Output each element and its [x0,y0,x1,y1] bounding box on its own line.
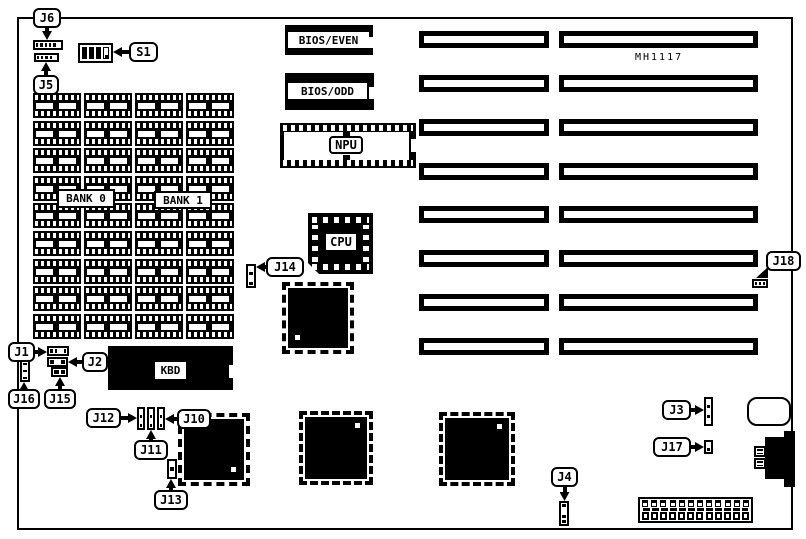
chip-detail [212,241,229,247]
chip-notch [229,365,236,378]
chip-detail [86,166,130,171]
chip-detail [110,296,127,302]
chip-detail [35,166,79,171]
chip-detail [212,103,229,109]
chip-detail [36,158,53,164]
memory-chip [33,231,81,256]
pin-cell [150,420,152,423]
pin-cell [757,461,763,463]
chip-detail [36,241,53,247]
power-cells-row [642,512,749,520]
chip-detail [86,277,130,282]
chip-detail [35,221,79,226]
pin-cell [759,282,761,285]
memory-chip [186,259,234,284]
chip-detail [35,233,79,238]
chip-detail [110,131,127,137]
chip-detail [161,158,178,164]
chip-detail [35,111,79,116]
chip-detail [35,95,79,100]
pin-cell [140,410,142,413]
pin-cell [23,367,27,369]
power-pin [660,500,666,507]
callout-j6: J6 [33,8,61,28]
pin-cell [59,349,62,353]
memory-chip [84,259,132,284]
chip-detail [137,277,181,282]
connector-din-plug-2 [754,458,766,469]
chip-detail [212,296,229,302]
power-cell [660,512,667,520]
bios-odd-chip: BIOS/ODD [285,73,374,110]
isa-slot-short [419,338,549,355]
chip-detail [137,304,181,309]
pin-cell [58,43,60,47]
chip-detail [35,261,79,266]
callout-j10: J10 [177,409,211,429]
memory-chip [33,259,81,284]
chip-detail [137,288,181,293]
chip-detail [87,324,104,330]
pin-cell [249,282,253,285]
chip-detail [110,241,127,247]
power-cell [642,512,649,520]
chip-detail [137,316,181,321]
pin-cell [49,43,51,47]
chip-detail [189,269,206,275]
memory-chip [186,231,234,256]
pin-cell [41,56,43,59]
socket-pads [312,225,318,262]
memory-chip [135,286,183,311]
chip-detail [188,166,232,171]
isa-slot-short [419,31,549,48]
chip-detail [189,241,206,247]
callout-j1: J1 [8,342,35,362]
chip-detail [86,150,130,155]
pin-cell [160,410,162,413]
callout-j17: J17 [653,437,691,457]
connector-j18 [752,279,768,288]
chip-detail [188,111,232,116]
chip-detail [59,158,76,164]
chip-detail [137,178,181,183]
bank0-label: BANK 0 [57,189,115,208]
pin-cell [150,410,152,413]
pin-cell [249,267,253,270]
chip-detail [59,213,76,219]
pin-cell [755,282,757,285]
chip-detail [161,296,178,302]
pin-cell [61,360,65,364]
connector-j5 [34,53,59,62]
chip-detail [188,332,232,337]
pin-cell [140,420,142,423]
memory-chip [135,148,183,173]
power-cell [742,512,749,520]
chip-detail [137,332,181,337]
chip-detail [188,178,232,183]
chip-detail [137,249,181,254]
memory-chip [135,121,183,146]
chip-detail [35,304,79,309]
npu-label: NPU [329,136,363,154]
socket-pins [283,160,413,166]
pin-cell [37,56,39,59]
chip-detail [138,103,155,109]
chip-detail [189,158,206,164]
connector-j1 [47,346,69,356]
power-cell [706,512,713,520]
chip-detail [137,150,181,155]
callout-j2: J2 [82,352,108,372]
chip-detail [189,103,206,109]
isa-slot-long [559,250,758,267]
socket-pins [283,125,413,131]
chip-detail [138,296,155,302]
pin-cell [54,56,56,59]
chip-detail [86,249,130,254]
power-cell [687,512,694,520]
chip-detail [110,269,127,275]
callout-j14: J14 [266,257,304,277]
chip-detail [188,233,232,238]
memory-chip [186,121,234,146]
dip-switch-position [89,47,94,59]
chip-detail [86,316,130,321]
chip-detail [86,139,130,144]
memory-chip [84,314,132,339]
chip-detail [212,131,229,137]
qfp-chip-3 [305,417,367,479]
pin-cell [150,424,152,427]
power-divider [643,508,748,511]
power-pin [715,500,721,507]
pin-cell [53,43,55,47]
chip-detail [86,111,130,116]
pin1-dot [295,335,300,340]
pin-cell [707,443,710,446]
chip-detail [189,296,206,302]
power-pin [706,500,712,507]
power-pin [651,500,657,507]
pin-cell [707,448,710,451]
memory-chip [186,148,234,173]
pin-cell [249,277,253,280]
pin-cell [707,415,710,418]
chip-detail [188,288,232,293]
socket-pads [312,217,369,223]
cpu-socket: CPU [308,213,373,274]
chip-detail [137,139,181,144]
connector-j2 [47,357,68,367]
pin-cell [23,374,27,376]
chip-detail [86,332,130,337]
isa-slot-short [419,206,549,223]
memory-chip [84,286,132,311]
socket-pads [363,225,369,262]
pin-cell [160,415,162,418]
memory-chip [33,314,81,339]
chip-detail [212,186,229,192]
chip-detail [137,221,181,226]
connector-j12-2 [147,407,155,430]
power-pin [679,500,685,507]
pin-cell [23,377,27,379]
dip-switch-position [82,47,87,59]
chip-detail [189,213,206,219]
power-pin [725,500,731,507]
memory-chip [186,314,234,339]
chip-detail [137,166,181,171]
chip-detail [137,95,181,100]
pin-cell [45,56,47,59]
pin-cell [50,360,54,364]
pin-cell [249,272,253,275]
bios-even-label: BIOS/EVEN [288,32,369,48]
callout-j4: J4 [551,467,578,487]
chip-detail [188,221,232,226]
chip-detail [35,288,79,293]
pin-cell [763,282,765,285]
memory-chip [186,286,234,311]
chip-detail [36,186,53,192]
power-cell [678,512,685,520]
pin-cell [562,509,566,512]
chip-detail [161,131,178,137]
memory-chip [84,148,132,173]
chip-detail [87,103,104,109]
memory-chip [84,93,132,118]
power-cell [651,512,658,520]
chip-detail [35,150,79,155]
chip-detail [36,324,53,330]
power-pin [688,500,694,507]
pin-cell [707,420,710,423]
isa-slot-short [419,75,549,92]
power-pin [670,500,676,507]
bios-odd-label: BIOS/ODD [288,83,367,99]
chip-notch [411,139,418,152]
isa-slot-short [419,163,549,180]
callout-j16: J16 [8,389,40,409]
chip-detail [161,241,178,247]
callout-j5: J5 [33,75,59,95]
connector-j13 [167,459,177,479]
chip-detail [110,213,127,219]
callout-j12: J12 [86,408,121,428]
chip-detail [161,213,178,219]
memory-chip [33,286,81,311]
pin-cell [757,465,763,467]
connector-din-plug-1 [754,446,766,457]
chip-detail [161,324,178,330]
pin-cell [170,473,174,476]
chip-detail [35,139,79,144]
chip-detail [188,261,232,266]
pin-cell [64,349,67,353]
chip-detail [86,261,130,266]
pin-cell [150,415,152,418]
bank1-label: BANK 1 [154,191,212,209]
memory-chip [84,231,132,256]
board-part-number: MH1117 [635,52,683,63]
chip-detail [110,103,127,109]
chip-detail [212,269,229,275]
power-cell [696,512,703,520]
isa-slot-long [559,206,758,223]
keyboard-din-connector-edge [784,431,795,487]
power-pin [697,500,703,507]
power-cell [669,512,676,520]
pin-cell [140,415,142,418]
connector-j12-3 [157,407,165,430]
socket-pads [312,264,369,270]
chip-detail [161,103,178,109]
chip-detail [188,123,232,128]
connector-j15 [51,367,68,377]
chip-detail [212,213,229,219]
pin-cell [170,467,174,470]
connector-j14 [246,264,256,288]
pin-cell [757,453,763,455]
chip-detail [59,103,76,109]
qfp-chip-1 [288,288,348,348]
chip-detail [36,296,53,302]
chip-detail [189,324,206,330]
chip-detail [87,269,104,275]
chip-detail [188,139,232,144]
chip-detail [86,304,130,309]
chip-detail [87,213,104,219]
chip-detail [138,158,155,164]
chip-detail [188,95,232,100]
pin-cell [40,43,42,47]
pin-cell [54,370,59,374]
chip-detail [188,316,232,321]
pin-cell [50,56,52,59]
chip-detail [110,324,127,330]
chip-detail [35,249,79,254]
chip-detail [35,277,79,282]
callout-j3: J3 [662,400,691,420]
isa-slot-long [559,294,758,311]
chip-detail [212,324,229,330]
chip-detail [35,123,79,128]
qfp-chip-4 [445,418,509,480]
chip-detail [86,233,130,238]
chip-detail [188,304,232,309]
pin1-dot [355,423,360,428]
memory-chip [135,93,183,118]
isa-slot-long [559,163,758,180]
isa-slot-short [419,250,549,267]
chip-detail [87,131,104,137]
pin-cell [562,520,566,523]
chip-detail [138,186,155,192]
isa-slot-long [559,338,758,355]
pin-cell [707,410,710,413]
connector-j6 [33,40,63,50]
chip-detail [138,213,155,219]
chip-notch [369,87,378,99]
connector-j3 [704,397,713,426]
bios-even-chip: BIOS/EVEN [285,25,373,55]
connector-j16 [20,360,30,382]
pin-cell [160,424,162,427]
chip-detail [35,178,79,183]
pin-cell [707,405,710,408]
memory-chip [33,148,81,173]
chip-detail [188,277,232,282]
pin-cell [61,370,66,374]
power-cell [724,512,731,520]
pin-cell [707,400,710,403]
memory-chip [186,93,234,118]
motherboard-layout-diagram: BIOS/EVEN BIOS/ODD NPU CPU KBD BANK 0 BA… [0,0,806,539]
pin-cell [140,424,142,427]
callout-j13: J13 [154,490,188,510]
chip-detail [36,131,53,137]
chip-detail [86,288,130,293]
isa-slot-short [419,119,549,136]
chip-detail [59,296,76,302]
chip-detail [188,150,232,155]
memory-chip [33,121,81,146]
chip-detail [138,241,155,247]
keyboard-controller-chip: KBD [108,346,233,390]
pin-cell [23,370,27,372]
chip-detail [161,269,178,275]
connector-j12-1 [137,407,145,430]
power-pin [642,500,648,507]
switch-mark [105,55,109,59]
pin-cell [160,420,162,423]
chip-detail [110,158,127,164]
chip-detail [137,111,181,116]
chip-detail [35,332,79,337]
chip-detail [87,158,104,164]
dip-switch-s1 [78,43,113,63]
isa-slot-long [559,119,758,136]
power-connector [638,497,753,523]
chip-detail [87,296,104,302]
power-cell [733,512,740,520]
pin-cell [56,360,60,364]
pin1-dot [231,467,236,472]
chip-detail [59,324,76,330]
connector-outline [747,397,791,426]
npu-socket: NPU [280,123,416,168]
chip-detail [137,123,181,128]
connector-j17 [704,440,713,454]
memory-chip [135,259,183,284]
isa-slot-long [559,75,758,92]
chip-detail [138,269,155,275]
chip-detail [189,131,206,137]
chip-detail [35,316,79,321]
cpu-label: CPU [326,234,356,250]
pin-cell [45,43,47,47]
pin-cell [55,349,58,353]
pin-cell [23,363,27,365]
power-pin [734,500,740,507]
power-pin [743,500,749,507]
chip-detail [59,269,76,275]
pin-cell [757,449,763,451]
chip-detail [86,95,130,100]
pin-cell [562,504,566,507]
